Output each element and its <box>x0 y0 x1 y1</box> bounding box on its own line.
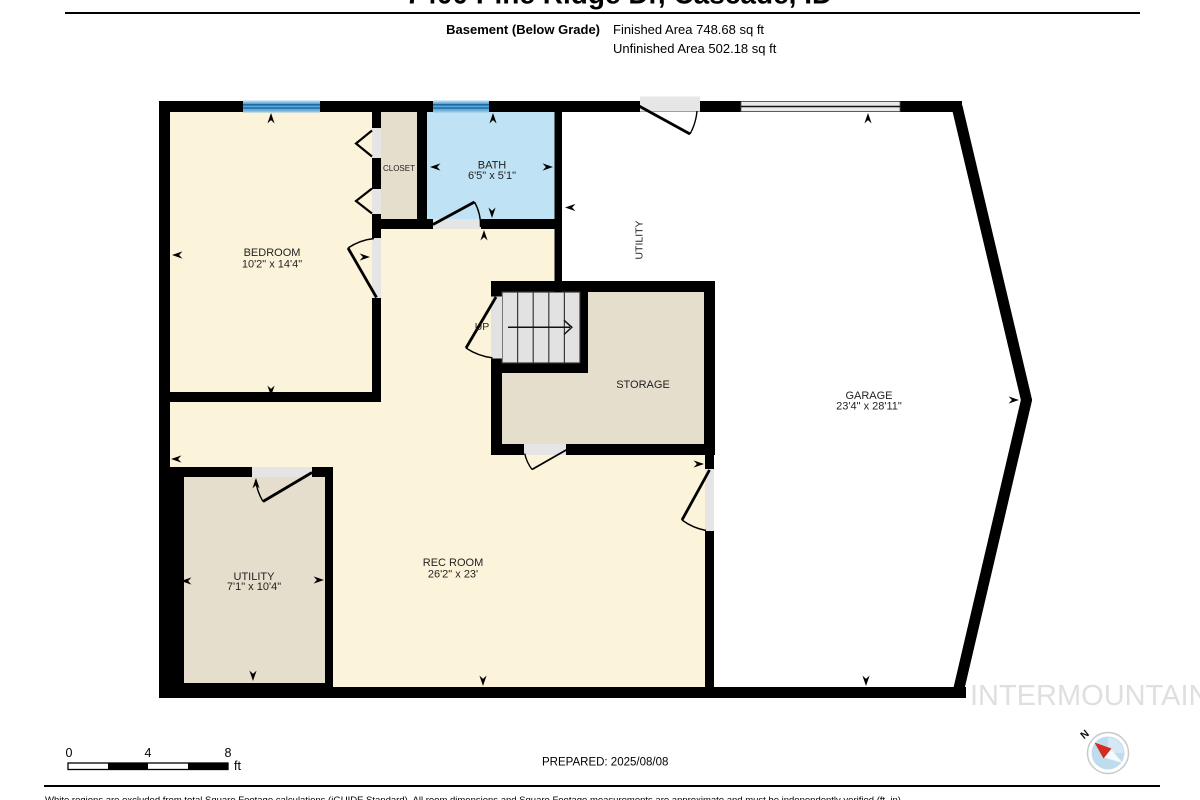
svg-text:Unfinished Area 502.18 sq ft: Unfinished Area 502.18 sq ft <box>613 41 777 56</box>
svg-text:REC ROOM: REC ROOM <box>423 557 484 569</box>
svg-text:White regions are excluded fro: White regions are excluded from total Sq… <box>45 795 904 800</box>
svg-text:INTERMOUNTAIN: INTERMOUNTAIN <box>970 680 1200 712</box>
svg-text:PREPARED: 2025/08/08: PREPARED: 2025/08/08 <box>542 757 668 769</box>
svg-text:6'5" x 5'1": 6'5" x 5'1" <box>468 170 516 182</box>
svg-text:CLOSET: CLOSET <box>383 164 415 173</box>
svg-text:10'2" x 14'4": 10'2" x 14'4" <box>242 259 302 271</box>
svg-text:ft: ft <box>234 759 241 773</box>
svg-text:Finished Area 748.68 sq ft: Finished Area 748.68 sq ft <box>613 22 764 37</box>
svg-text:8: 8 <box>225 746 232 760</box>
svg-text:BEDROOM: BEDROOM <box>244 247 301 259</box>
svg-text:7400 Pine Ridge Dr, Cascade, I: 7400 Pine Ridge Dr, Cascade, ID <box>406 0 832 10</box>
svg-text:STORAGE: STORAGE <box>616 379 670 391</box>
svg-text:23'4" x 28'11": 23'4" x 28'11" <box>836 401 902 413</box>
svg-text:UTILITY: UTILITY <box>634 220 646 259</box>
svg-text:7'1" x 10'4": 7'1" x 10'4" <box>227 581 281 593</box>
svg-text:0: 0 <box>66 746 73 760</box>
svg-text:4: 4 <box>145 746 152 760</box>
svg-text:UP: UP <box>475 321 490 333</box>
svg-text:N: N <box>1078 728 1092 742</box>
svg-text:26'2" x 23': 26'2" x 23' <box>428 569 478 581</box>
svg-text:Basement (Below Grade): Basement (Below Grade) <box>446 22 600 37</box>
